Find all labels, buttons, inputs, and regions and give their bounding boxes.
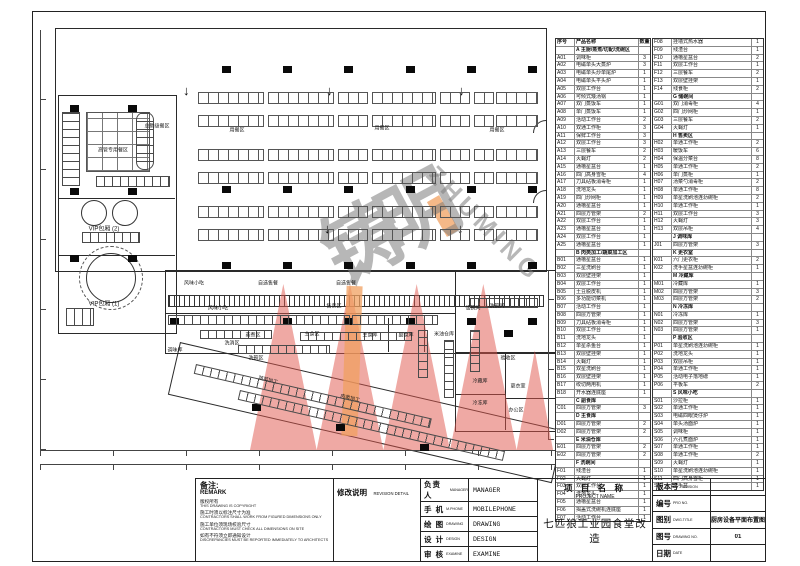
equipment-section-row: H 售卖区: [653, 132, 763, 140]
structural-column: [467, 186, 476, 193]
cell: 洗地龙头: [575, 187, 639, 194]
room-label: 冷冻库: [472, 402, 487, 407]
project-name: 七匹狼工业园食堂改造: [538, 516, 652, 546]
remark-line-en: DISCREPANCIES MUST BE REPORTED IMMEDIATE…: [200, 538, 329, 542]
cell: 2: [639, 421, 650, 428]
cell: 1: [752, 405, 763, 412]
equipment-table-row: A14灭蝇灯2: [556, 155, 650, 163]
room-label: 验收区: [500, 357, 515, 362]
cell: H13: [653, 226, 672, 233]
room-label: 洗碗间: [489, 305, 504, 310]
cell: 六门更衣柜: [672, 257, 752, 264]
room-label: 蒸煮区: [245, 334, 260, 339]
cell: H02: [653, 140, 672, 147]
equipment-block: [66, 308, 94, 326]
signoff-label-cn: 手 机: [424, 504, 444, 515]
cell: 残渣台: [575, 468, 639, 475]
structural-column: [336, 424, 345, 431]
equipment-table-row: H04保温分菜台8: [653, 155, 763, 163]
cell: 1: [639, 187, 650, 194]
dining-table-row: [496, 206, 538, 218]
cell: 1: [639, 265, 650, 272]
signoff-row: 绘 图DRAWINGDRAWING: [421, 516, 537, 531]
equipment-table-row: H11双层工作台3: [653, 210, 763, 218]
cell: 三星洗刷台: [575, 265, 639, 272]
cell: 2: [752, 117, 763, 124]
cell: A23: [556, 226, 575, 233]
room-label: 储碗间: [465, 307, 480, 312]
signoff-table: 负责人MANAGERMANAGER手 机M.PHONEMOBILEPHONE绘 …: [421, 479, 538, 561]
cell: A15: [556, 164, 575, 171]
equipment-table-row: B08四层方管架1: [556, 311, 650, 319]
info-row: 图别DWG.TITLE厨房设备平面布置图: [653, 511, 765, 528]
equipment-table-row: D02四层方管架2: [556, 428, 650, 436]
cell: [653, 234, 672, 241]
cell: A 主厨/蒸煮/切配/洗碗区: [575, 47, 639, 54]
equipment-table-row: N01冷冻库1: [653, 311, 763, 319]
cell: G 储碗间: [672, 94, 752, 101]
equipment-table-row: M01冷藏库1: [653, 280, 763, 288]
cell: [653, 390, 672, 397]
cell: A06: [556, 94, 575, 101]
cell: B01: [556, 257, 575, 264]
cell: 1: [639, 366, 650, 373]
cell: 开水器连底座: [575, 390, 639, 397]
cell: 1: [752, 421, 763, 428]
cell: 数量: [639, 39, 650, 46]
project-label-en: PROJECT NAME: [538, 494, 652, 500]
cell: 洗手星盆连沥碗柜: [672, 265, 752, 272]
equipment-section-row: N 冷冻库: [653, 303, 763, 311]
info-label-cn: 图号: [656, 531, 671, 542]
cell: 三层餐车: [672, 117, 752, 124]
cell: 6: [752, 148, 763, 155]
equipment-table-row: S10单星洗刷池连沥碗柜1: [653, 467, 763, 475]
cell: 1: [639, 382, 650, 389]
cell: 2: [639, 452, 650, 459]
cell: A25: [556, 242, 575, 249]
dining-table-row: [338, 172, 368, 184]
cell: K 更衣室: [672, 250, 752, 257]
cell: 1: [752, 265, 763, 272]
room-label: 调味库: [167, 349, 182, 354]
cell: 1: [752, 444, 763, 451]
cell: [556, 47, 575, 54]
cell: 六孔煮面炉: [672, 437, 752, 444]
remark-section: 备注: REMARK 版权所有THIS DRAWING IS COPYRIGHT…: [196, 479, 334, 561]
signoff-label: 设 计DESIGN: [421, 532, 469, 546]
structural-column: [344, 186, 353, 193]
equipment-section-row: E 米油仓库: [556, 436, 650, 444]
equipment-table-row: P06平板车2: [653, 381, 763, 389]
equipment-table-row: B09刀具砧板消毒柜1: [556, 319, 650, 327]
cell: 1: [639, 234, 650, 241]
cell: [639, 460, 650, 467]
equipment-table-row: S09灭蝇灯1: [653, 459, 763, 467]
equipment-table-row: G01双门消毒柜4: [653, 100, 763, 108]
dining-table-row: [268, 206, 334, 218]
cell: 4: [639, 172, 650, 179]
cell: 序号: [556, 39, 575, 46]
cell: 单通工作柜: [672, 452, 752, 459]
equipment-table-row: A17刀具砧板消毒柜1: [556, 178, 650, 186]
structural-column: [467, 262, 476, 269]
cell: 通槽星盆台: [672, 55, 752, 62]
equipment-table-row: M03四层方管架2: [653, 295, 763, 303]
structural-column: [128, 188, 137, 195]
cell: F08: [653, 39, 672, 46]
room-label: VIP包厢 (1): [89, 303, 120, 308]
signoff-value: MOBILEPHONE: [469, 506, 537, 513]
signoff-label-cn: 设 计: [424, 534, 444, 545]
cell: 灭蝇灯: [672, 218, 752, 225]
structural-column: [222, 186, 231, 193]
structural-column: [128, 105, 137, 112]
cell: 双门消毒柜: [672, 101, 752, 108]
cell: [556, 413, 575, 420]
cell: 1: [752, 398, 763, 405]
equipment-table-row: A01调味柜3: [556, 54, 650, 62]
dining-table-row: [198, 172, 264, 184]
equipment-table-row: A15通槽星盆台1: [556, 163, 650, 171]
cell: 双门蒸饭车: [575, 101, 639, 108]
signoff-label-en: M.PHONE: [446, 507, 463, 511]
cell: 冷藏库: [672, 281, 752, 288]
cell: 刀具砧板消毒柜: [575, 179, 639, 186]
cell: 单星洗刷池连沥碗柜: [672, 195, 752, 202]
revision-section: 修改说明 REVISION DETAIL: [334, 479, 421, 561]
info-label-en: PRO NO.: [673, 501, 688, 505]
dining-table-row: [338, 115, 368, 127]
cell: 2: [752, 382, 763, 389]
cell: [653, 273, 672, 280]
project-section: 项 目 名 称 PROJECT NAME 七匹狼工业园食堂改造: [538, 479, 653, 561]
cell: [752, 250, 763, 257]
equipment-block: [352, 315, 438, 325]
equipment-table-row: H09单星洗刷池连沥碗柜2: [653, 194, 763, 202]
cell: 1: [752, 460, 763, 467]
structural-column: [70, 188, 79, 195]
cell: 四门高身雪柜: [575, 172, 639, 179]
equipment-table-row: A18洗地龙头1: [556, 186, 650, 194]
equipment-block: [418, 330, 428, 378]
cell: 通槽星盆台: [575, 164, 639, 171]
cell: J 调味库: [672, 234, 752, 241]
cell: 1: [639, 304, 650, 311]
equipment-table-left: 序号产品名称数量A 主厨/蒸煮/切配/洗碗区A01调味柜3A02电磁单头大蒸炉3…: [555, 38, 651, 522]
info-value: 厨房设备平面布置图: [711, 515, 765, 524]
cell: N03: [653, 327, 672, 334]
structural-column: [252, 404, 261, 411]
cell: 活动电子落地磅: [672, 374, 752, 381]
cell: B06: [556, 296, 575, 303]
cell: 1: [752, 62, 763, 69]
cell: 电磁四眼煲仔炉: [672, 413, 752, 420]
cell: 通槽星盆台: [575, 242, 639, 249]
cell: [752, 304, 763, 311]
signoff-row: 审 核EXAMINEEXAMINE: [421, 546, 537, 561]
cell: C 副食库: [575, 398, 639, 405]
cell: B12: [556, 343, 575, 350]
cell: 2: [752, 86, 763, 93]
equipment-table-row: S08单通工作柜2: [653, 451, 763, 459]
cell: S02: [653, 405, 672, 412]
equipment-table-row: A02电磁单头大蒸炉3: [556, 61, 650, 69]
cell: 1: [639, 242, 650, 249]
cell: 1: [752, 359, 763, 366]
equipment-table-row: H05单通工作柜2: [653, 163, 763, 171]
cell: H04: [653, 156, 672, 163]
cell: [752, 94, 763, 101]
equipment-table-row: P04单通工作柜1: [653, 365, 763, 373]
cell: 1: [752, 429, 763, 436]
dining-table-row: [268, 92, 334, 104]
equipment-table-row: A16四门高身雪柜4: [556, 171, 650, 179]
cell: 四层方管架: [672, 320, 752, 327]
equipment-table-row: B10双层工作台1: [556, 326, 650, 334]
cell: 四层方管架: [575, 452, 639, 459]
dining-table-row: [198, 229, 264, 241]
equipment-table-row: F09残渣台1: [653, 46, 763, 54]
room-label: 风味小吃: [184, 282, 204, 287]
cell: F01: [556, 468, 575, 475]
cell: D01: [556, 421, 575, 428]
cell: 1: [752, 374, 763, 381]
equipment-table-row: D01四层方管架2: [556, 420, 650, 428]
cell: [556, 460, 575, 467]
cell: S09: [653, 460, 672, 467]
cell: 1: [639, 179, 650, 186]
cell: H10: [653, 203, 672, 210]
cell: M 冷藏库: [672, 273, 752, 280]
cell: 2: [639, 444, 650, 451]
cell: 双通工作柜: [575, 125, 639, 132]
signoff-value: MANAGER: [469, 487, 537, 494]
info-label-cn: 编号: [656, 498, 671, 509]
structural-column: [283, 186, 292, 193]
structural-column: [467, 66, 476, 73]
cell: 保鲜工作台: [575, 133, 639, 140]
room-label: 售卖区: [326, 305, 341, 310]
vip-round-table: [81, 200, 107, 226]
cell: 可倾式矮汤锅: [575, 94, 639, 101]
structural-column: [222, 262, 231, 269]
signoff-row: 负责人MANAGERMANAGER: [421, 479, 537, 501]
cell: B03: [556, 273, 575, 280]
cell: 绞切两用机: [575, 382, 639, 389]
drawing-info-table: 版本号REVISION编号PRO NO.图别DWG.TITLE厨房设备平面布置图…: [653, 479, 765, 561]
cell: 四层方管架: [575, 211, 639, 218]
cell: 双层吊柜: [672, 226, 752, 233]
cell: A11: [556, 133, 575, 140]
cell: 沙拉柜: [672, 398, 752, 405]
cell: 4: [752, 101, 763, 108]
equipment-table-row: G02四门炒网柜1: [653, 108, 763, 116]
cell: F10: [653, 55, 672, 62]
structural-column: [528, 186, 537, 193]
dining-table-row: [474, 172, 494, 184]
room-label: 主食区: [304, 333, 319, 338]
cell: 1: [752, 109, 763, 116]
cell: 2: [639, 211, 650, 218]
equipment-table-row: A25通槽星盆台1: [556, 241, 650, 249]
info-row: 版本号REVISION: [653, 479, 765, 495]
cell: 3: [639, 55, 650, 62]
room-label: 用餐区: [374, 127, 389, 132]
cell: H 售卖区: [672, 133, 752, 140]
cell: 1: [639, 296, 650, 303]
equipment-table-row: B14灭蝇灯1: [556, 358, 650, 366]
cell: [653, 335, 672, 342]
equipment-table-row: S04单头汤面炉1: [653, 420, 763, 428]
cell: 调味柜: [672, 429, 752, 436]
cell: [556, 398, 575, 405]
equipment-section-row: P 验收区: [653, 334, 763, 342]
cell: 土豆脱皮机: [575, 289, 639, 296]
cell: 1: [639, 94, 650, 101]
cell: H11: [653, 211, 672, 218]
cell: A24: [556, 234, 575, 241]
structural-column: [528, 318, 537, 325]
structural-column: [467, 318, 476, 325]
equipment-table-row: F01残渣台1: [556, 467, 650, 475]
cell: M03: [653, 296, 672, 303]
cell: B11: [556, 335, 575, 342]
signoff-label: 手 机M.PHONE: [421, 502, 469, 516]
cell: B05: [556, 289, 575, 296]
dining-table-row: [496, 229, 538, 241]
cell: F 洗碗间: [575, 460, 639, 467]
cell: 多功能切菜机: [575, 296, 639, 303]
cell: 单通工作柜: [672, 366, 752, 373]
dining-table-row: [198, 115, 264, 127]
signoff-label-cn: 审 核: [424, 549, 444, 560]
equipment-section-row: F 洗碗间: [556, 459, 650, 467]
cell: 四层方管架: [575, 312, 639, 319]
cell: A02: [556, 62, 575, 69]
equipment-table-row: E02四层方管架2: [556, 451, 650, 459]
cell: 双层工作台: [575, 86, 639, 93]
dining-table-row: [474, 229, 494, 241]
equipment-block: [82, 232, 140, 243]
cell: 1: [639, 327, 650, 334]
cell: 三层餐车: [575, 148, 639, 155]
dining-table-row: [474, 92, 494, 104]
dining-table-row: [440, 115, 470, 127]
info-label: 编号PRO NO.: [653, 496, 711, 512]
signoff-value: DRAWING: [469, 521, 537, 528]
cell: 四门炒网柜: [575, 195, 639, 202]
cell: A10: [556, 125, 575, 132]
cell: 2: [752, 164, 763, 171]
dining-table-row: [198, 149, 264, 161]
equipment-table-row: A06可倾式矮汤锅1: [556, 93, 650, 101]
equipment-block: [238, 345, 330, 354]
cell: 单通工作柜: [672, 140, 752, 147]
cell: 3: [752, 211, 763, 218]
signoff-label-en: DRAWING: [446, 522, 463, 526]
cell: M01: [653, 281, 672, 288]
cell: 2: [752, 257, 763, 264]
structural-column: [222, 66, 231, 73]
cell: 1: [752, 327, 763, 334]
cell: 4: [752, 226, 763, 233]
cell: 双层壁挂架: [672, 78, 752, 85]
equipment-section-row: B 肉类加工/蔬菜加工区: [556, 249, 650, 257]
room-label: 洗碗区: [248, 357, 263, 362]
dining-table-row: [474, 115, 494, 127]
structural-column: [344, 66, 353, 73]
cell: 单通工作柜: [672, 444, 752, 451]
cell: 汤菜勺消毒柜: [672, 179, 752, 186]
equipment-table-row: A24双层工作台1: [556, 233, 650, 241]
cell: 1: [752, 468, 763, 475]
equipment-table-row: B13双层壁挂架1: [556, 350, 650, 358]
equipment-table-row: F11双层工作台1: [653, 61, 763, 69]
room-label: VIP包厢 (2): [89, 228, 120, 233]
cell: A07: [556, 101, 575, 108]
cell: 冷冻库: [672, 312, 752, 319]
cell: A01: [556, 55, 575, 62]
room-label: 冷藏库: [472, 380, 487, 385]
equipment-table-row: S01沙拉柜1: [653, 397, 763, 405]
cell: G03: [653, 117, 672, 124]
cell: 1: [639, 164, 650, 171]
equipment-table-row: A08单门蒸饭车1: [556, 108, 650, 116]
cell: [752, 133, 763, 140]
equipment-table-row: B16双层壁挂架1: [556, 373, 650, 381]
cell: 双星洗刷台: [575, 366, 639, 373]
cell: 3: [752, 242, 763, 249]
cell: 单门蒸柜: [672, 172, 752, 179]
info-label-cn: 版本号: [656, 481, 679, 492]
cell: E01: [556, 444, 575, 451]
cell: N01: [653, 312, 672, 319]
dining-table-row: [338, 229, 368, 241]
cell: B14: [556, 359, 575, 366]
cell: [556, 250, 575, 257]
cell: 2: [639, 117, 650, 124]
cell: H06: [653, 172, 672, 179]
cell: 1: [639, 320, 650, 327]
remark-subtitle: REMARK: [200, 490, 329, 497]
cell: G01: [653, 101, 672, 108]
equipment-table-row: A20通槽星盆台1: [556, 202, 650, 210]
cell: 3: [752, 289, 763, 296]
equipment-table-row: H13双层吊柜4: [653, 225, 763, 233]
cell: 残食柜: [672, 86, 752, 93]
cell: 调味柜: [575, 55, 639, 62]
info-value: 01: [711, 534, 765, 540]
equipment-table-row: J01四层方管架3: [653, 241, 763, 249]
cell: 保温分菜台: [672, 156, 752, 163]
cell: 四层方管架: [575, 429, 639, 436]
equipment-section-row: C 副食库: [556, 397, 650, 405]
cell: A19: [556, 195, 575, 202]
equipment-block: [168, 315, 350, 325]
cell: [639, 413, 650, 420]
cell: 1: [639, 70, 650, 77]
equipment-section-row: D 主食库: [556, 412, 650, 420]
cell: 1: [752, 125, 763, 132]
cell: A09: [556, 117, 575, 124]
cell: 3: [639, 133, 650, 140]
info-row: 编号PRO NO.: [653, 495, 765, 512]
equipment-table-row: G03三层餐车2: [653, 116, 763, 124]
signoff-label-en: MANAGER: [450, 488, 468, 492]
cell: [752, 273, 763, 280]
cell: K02: [653, 265, 672, 272]
